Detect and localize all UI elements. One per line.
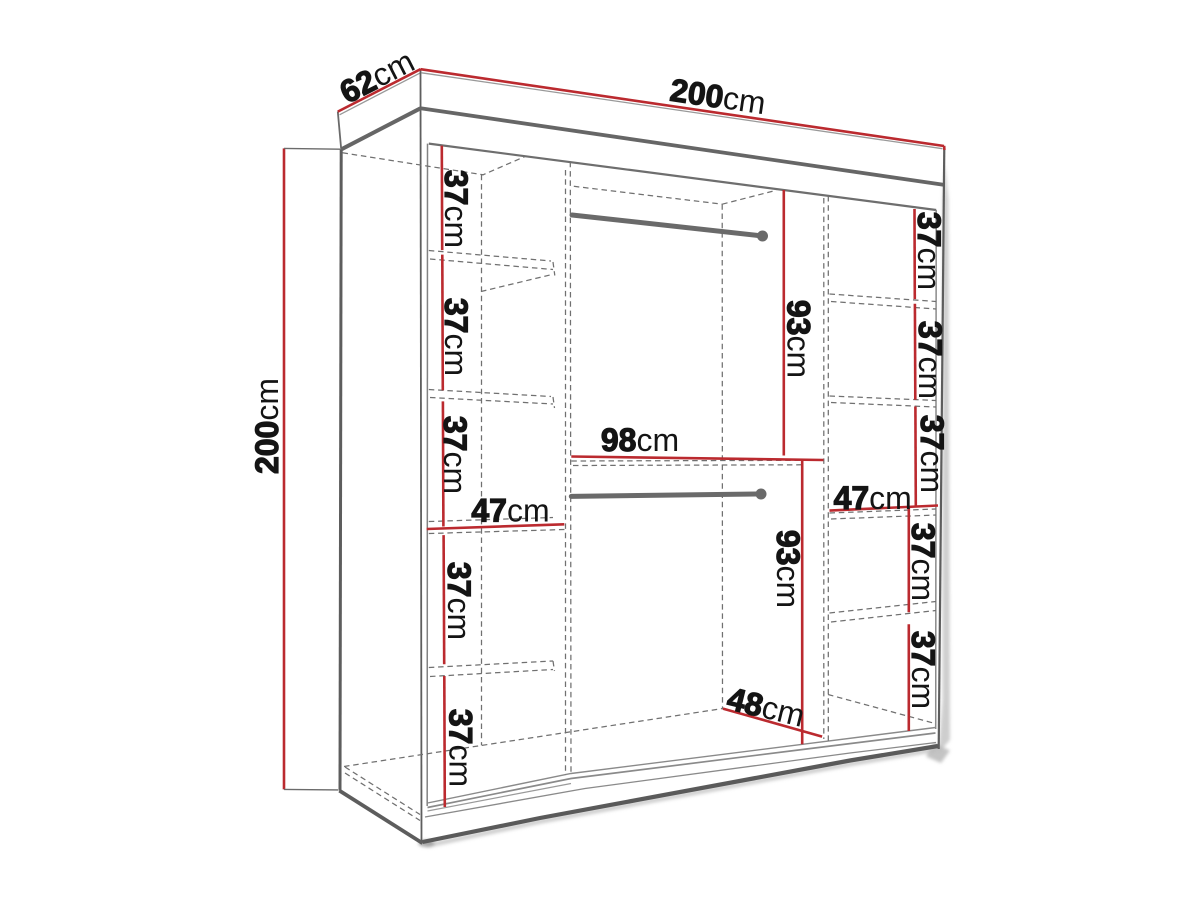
svg-text:37cm: 37cm xyxy=(905,523,941,601)
svg-text:37cm: 37cm xyxy=(437,416,473,494)
svg-text:37cm: 37cm xyxy=(911,212,947,290)
svg-text:37cm: 37cm xyxy=(438,170,474,248)
svg-text:37cm: 37cm xyxy=(912,321,948,399)
svg-text:98cm: 98cm xyxy=(601,422,679,458)
svg-text:47cm: 47cm xyxy=(471,493,549,529)
svg-text:93cm: 93cm xyxy=(770,530,806,608)
svg-text:37cm: 37cm xyxy=(905,631,941,709)
svg-text:37cm: 37cm xyxy=(441,562,477,640)
svg-text:47cm: 47cm xyxy=(834,480,912,516)
svg-text:37cm: 37cm xyxy=(914,415,950,493)
svg-text:93cm: 93cm xyxy=(781,300,817,378)
svg-text:37cm: 37cm xyxy=(443,709,479,787)
svg-text:200cm: 200cm xyxy=(249,378,285,474)
svg-text:37cm: 37cm xyxy=(438,298,474,376)
